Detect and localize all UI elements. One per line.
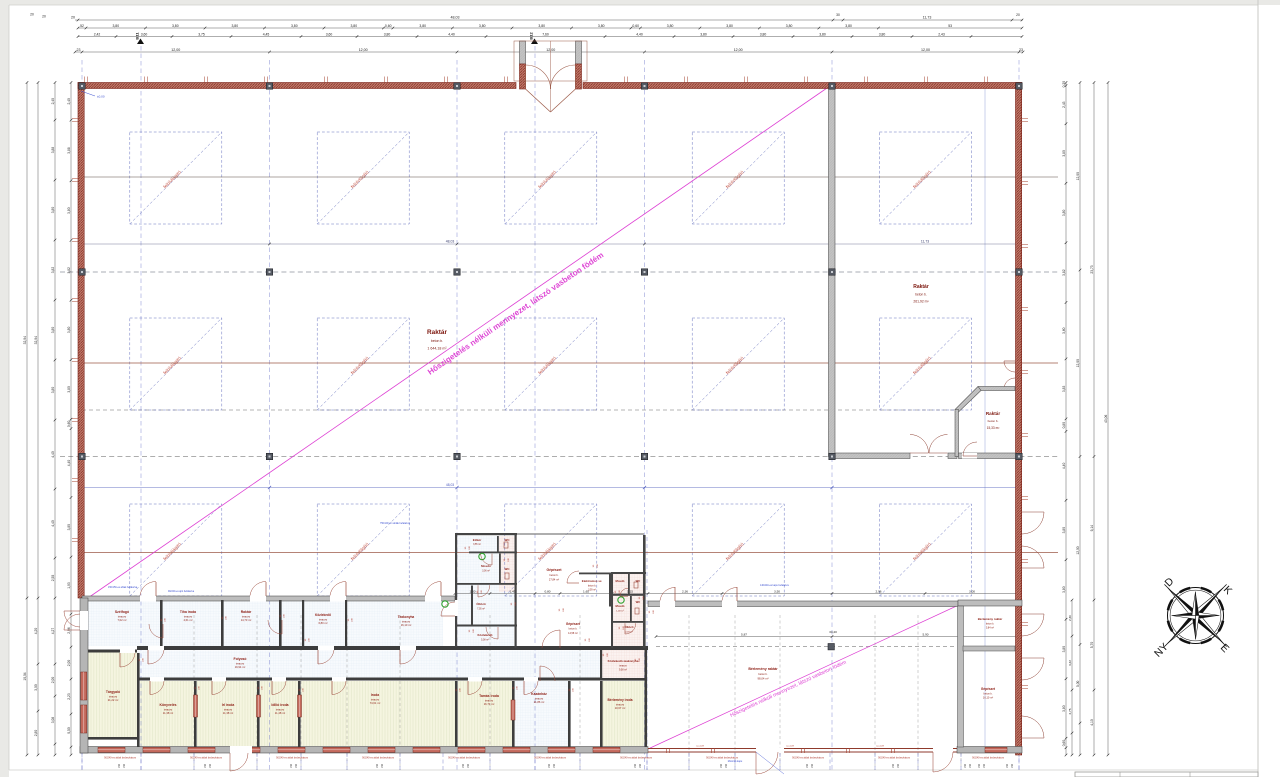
svg-text:terazzo: terazzo	[118, 615, 127, 618]
svg-text:terazzo: terazzo	[535, 697, 544, 700]
svg-text:150: 150	[1011, 763, 1014, 768]
svg-text:3,80: 3,80	[845, 24, 852, 28]
svg-text:WC: WC	[505, 538, 511, 542]
svg-text:43,06: 43,06	[1104, 415, 1108, 423]
svg-text:150: 150	[725, 763, 728, 768]
svg-text:52: 52	[80, 24, 84, 28]
svg-text:90/240-es ablak bedeszkázva: 90/240-es ablak bedeszkázva	[972, 757, 1004, 760]
svg-text:34,40: 34,40	[829, 630, 837, 634]
svg-text:Öltöző: Öltöző	[625, 625, 634, 629]
svg-text:Bérlemény raktár: Bérlemény raktár	[748, 667, 778, 671]
svg-text:3,80: 3,80	[172, 24, 179, 28]
svg-text:3,06 m²: 3,06 m²	[482, 570, 490, 573]
svg-text:Tárgyaló: Tárgyaló	[106, 690, 120, 694]
svg-text:Mosdó: Mosdó	[615, 579, 624, 583]
svg-text:3,80: 3,80	[726, 24, 733, 28]
svg-text:3,82: 3,82	[1062, 269, 1066, 276]
svg-text:Tamás iroda: Tamás iroda	[479, 694, 499, 698]
svg-text:4,40: 4,40	[51, 451, 55, 458]
svg-text:11,73: 11,73	[923, 16, 932, 20]
svg-text:3,08: 3,08	[51, 717, 55, 724]
svg-text:150: 150	[553, 763, 556, 768]
svg-text:90/240-es ablak bedeszkázva: 90/240-es ablak bedeszkázva	[104, 757, 136, 760]
svg-text:150: 150	[376, 763, 379, 768]
svg-text:150: 150	[204, 763, 207, 768]
svg-text:Mosdó: Mosdó	[615, 604, 624, 608]
svg-text:140/240-es kapu befalazva: 140/240-es kapu befalazva	[760, 584, 789, 587]
svg-text:2,40: 2,40	[51, 98, 55, 105]
svg-text:2,43: 2,43	[1062, 101, 1066, 108]
svg-text:150: 150	[720, 763, 723, 768]
svg-text:Kazánház: Kazánház	[531, 692, 547, 696]
svg-text:3,88: 3,88	[51, 147, 55, 154]
svg-text:150: 150	[892, 763, 895, 768]
svg-text:9,14: 9,14	[1090, 525, 1094, 532]
svg-text:150: 150	[381, 763, 384, 768]
svg-text:11,48 m²: 11,48 m²	[275, 711, 286, 715]
svg-text:3,80: 3,80	[1062, 646, 1066, 653]
svg-text:15,33 m²: 15,33 m²	[987, 426, 1000, 430]
svg-text:Előtér: Előtér	[473, 538, 482, 542]
svg-text:150: 150	[969, 763, 972, 768]
svg-text:3,80: 3,80	[112, 24, 119, 28]
svg-text:2,75: 2,75	[1068, 708, 1072, 714]
svg-text:90/240-es ajtó befalazva: 90/240-es ajtó befalazva	[168, 590, 195, 593]
svg-text:Közlekedő: Közlekedő	[315, 613, 331, 617]
svg-text:2,55: 2,55	[51, 575, 55, 582]
svg-text:2,00: 2,00	[67, 660, 71, 667]
svg-text:3,80: 3,80	[819, 32, 826, 36]
svg-text:11,73: 11,73	[921, 240, 929, 244]
svg-text:2,42: 2,42	[94, 32, 101, 36]
svg-text:3,80: 3,80	[700, 32, 707, 36]
svg-text:terazzo: terazzo	[319, 618, 328, 621]
svg-text:5,08 m²: 5,08 m²	[481, 639, 489, 642]
svg-text:4,40: 4,40	[636, 32, 643, 36]
svg-text:12,00: 12,00	[1076, 172, 1080, 180]
svg-text:150: 150	[462, 763, 465, 768]
svg-text:terazzo: terazzo	[164, 708, 173, 711]
svg-text:23: 23	[1019, 48, 1023, 52]
svg-text:14,73 m²: 14,73 m²	[241, 618, 252, 622]
svg-text:53: 53	[948, 24, 952, 28]
svg-text:sz=1,09: sz=1,09	[876, 746, 885, 748]
svg-text:3,80: 3,80	[538, 24, 545, 28]
svg-text:3,80: 3,80	[760, 32, 767, 36]
svg-text:48,03: 48,03	[446, 483, 454, 487]
svg-text:3,60: 3,60	[326, 32, 333, 36]
svg-text:3,80: 3,80	[350, 24, 357, 28]
svg-text:150: 150	[983, 763, 986, 768]
svg-text:2,48 m²: 2,48 m²	[625, 631, 633, 634]
svg-text:3,80: 3,80	[1062, 705, 1066, 712]
svg-text:5,84 m²: 5,84 m²	[986, 627, 994, 630]
svg-text:12,00: 12,00	[546, 48, 555, 52]
svg-text:sz=1,09: sz=1,09	[696, 746, 705, 748]
svg-text:27,84 m²: 27,84 m²	[549, 578, 559, 582]
svg-text:3,80: 3,80	[1062, 150, 1066, 157]
svg-text:150: 150	[548, 763, 551, 768]
svg-text:3,80: 3,80	[598, 24, 605, 28]
svg-text:B11: B11	[135, 32, 140, 40]
svg-text:Folyosó: Folyosó	[234, 657, 247, 661]
svg-text:3,80: 3,80	[231, 24, 238, 28]
svg-text:1,15: 1,15	[627, 589, 633, 593]
svg-text:9,08 m²: 9,08 m²	[619, 669, 627, 672]
svg-text:3,80: 3,80	[291, 24, 298, 28]
svg-text:4,45: 4,45	[263, 32, 270, 36]
svg-text:48,03: 48,03	[446, 240, 455, 244]
svg-text:beton b.: beton b.	[983, 693, 992, 696]
svg-text:32,94: 32,94	[34, 336, 38, 344]
svg-text:23,73: 23,73	[1090, 265, 1094, 273]
svg-text:Bérlemény iroda: Bérlemény iroda	[608, 698, 633, 702]
svg-text:3,80: 3,80	[67, 386, 71, 393]
svg-text:Motoros kapu: Motoros kapu	[728, 760, 743, 763]
svg-text:0,50: 0,50	[67, 727, 71, 734]
svg-text:Iroda: Iroda	[371, 693, 379, 697]
svg-text:Raktár: Raktár	[241, 610, 252, 614]
svg-text:150: 150	[209, 763, 212, 768]
svg-text:beton b.: beton b.	[988, 419, 999, 423]
svg-text:150: 150	[634, 763, 637, 768]
svg-text:7,02 m²: 7,02 m²	[117, 618, 126, 622]
svg-text:90/240-es ablak bedeszkázva: 90/240-es ablak bedeszkázva	[792, 757, 824, 760]
svg-text:3,80: 3,80	[1062, 527, 1066, 534]
svg-text:5,87: 5,87	[741, 632, 747, 636]
svg-text:3,88: 3,88	[67, 147, 71, 154]
svg-text:90/240-es ablak bedeszkázva: 90/240-es ablak bedeszkázva	[362, 757, 394, 760]
svg-text:4,20: 4,20	[34, 628, 38, 635]
svg-text:11,38 m²: 11,38 m²	[223, 711, 234, 715]
svg-text:Elektromos sz.: Elektromos sz.	[582, 579, 603, 583]
svg-text:3,60: 3,60	[1062, 327, 1066, 334]
svg-text:±0,00: ±0,00	[97, 95, 105, 99]
svg-text:23: 23	[77, 48, 81, 52]
svg-text:Gépészet: Gépészet	[981, 687, 996, 691]
svg-text:Idllió iroda: Idllió iroda	[271, 703, 288, 707]
svg-text:terazzo: terazzo	[184, 615, 193, 618]
svg-text:16,10 m²: 16,10 m²	[401, 623, 412, 627]
svg-text:2,30: 2,30	[1068, 615, 1072, 621]
svg-text:3,80: 3,80	[479, 24, 486, 28]
svg-text:Raktár: Raktár	[913, 284, 929, 290]
svg-text:3,80: 3,80	[1062, 210, 1066, 217]
svg-text:3,80: 3,80	[419, 24, 426, 28]
svg-text:150: 150	[467, 763, 470, 768]
svg-text:150: 150	[123, 763, 126, 768]
svg-text:Teakonyha: Teakonyha	[398, 615, 415, 619]
svg-text:7,05 m²: 7,05 m²	[477, 608, 485, 611]
svg-text:terazzo: terazzo	[236, 662, 245, 665]
svg-text:90/240-es ablak bedeszkázva: 90/240-es ablak bedeszkázva	[534, 757, 566, 760]
svg-text:Raktár: Raktár	[427, 329, 447, 336]
svg-text:WC: WC	[505, 567, 511, 571]
svg-text:terazzo: terazzo	[242, 615, 251, 618]
svg-text:beton b.: beton b.	[549, 574, 558, 577]
svg-text:5,90: 5,90	[922, 632, 928, 636]
svg-text:0,60: 0,60	[632, 24, 639, 28]
svg-text:3,80: 3,80	[51, 387, 55, 394]
svg-text:3,80: 3,80	[67, 207, 71, 214]
svg-text:2,80: 2,80	[34, 730, 38, 737]
svg-text:12,00: 12,00	[921, 48, 930, 52]
svg-text:Gépészet: Gépészet	[546, 568, 562, 572]
svg-text:Könyvelés: Könyvelés	[160, 703, 177, 707]
svg-text:2,00: 2,00	[51, 677, 55, 684]
svg-text:150: 150	[811, 763, 814, 768]
svg-text:90/240-es ablak bedeszkázva: 90/240-es ablak bedeszkázva	[190, 757, 222, 760]
svg-text:3,80: 3,80	[879, 32, 886, 36]
svg-text:7,60: 7,60	[542, 32, 549, 36]
svg-text:1 644,18 m²: 1 644,18 m²	[427, 347, 447, 351]
svg-text:10,04: 10,04	[23, 672, 27, 680]
svg-text:4,40: 4,40	[67, 460, 71, 467]
svg-text:0,60: 0,60	[1062, 740, 1066, 747]
svg-text:261,92 m²: 261,92 m²	[913, 300, 929, 304]
svg-text:Mosdó: Mosdó	[481, 564, 491, 568]
svg-text:Közlekedő-teakonyha: Közlekedő-teakonyha	[608, 659, 639, 663]
svg-text:terazzo: terazzo	[619, 665, 627, 668]
svg-text:Közlekedő: Közlekedő	[477, 633, 492, 637]
svg-text:6,80 m²: 6,80 m²	[318, 621, 327, 625]
svg-text:4,10: 4,10	[1090, 719, 1094, 726]
svg-text:48,03: 48,03	[451, 16, 460, 20]
svg-text:4,27: 4,27	[51, 628, 55, 635]
svg-text:30: 30	[836, 13, 840, 17]
svg-text:sz=1,09: sz=1,09	[786, 746, 795, 748]
svg-text:B12: B12	[529, 32, 534, 40]
svg-text:150: 150	[639, 763, 642, 768]
svg-text:150: 150	[964, 763, 967, 768]
svg-text:150/150-es ablak befalazva: 150/150-es ablak befalazva	[108, 586, 138, 589]
svg-text:150: 150	[806, 763, 809, 768]
svg-text:5,70: 5,70	[1090, 642, 1094, 649]
svg-text:3,50: 3,50	[774, 589, 780, 593]
svg-text:3,80: 3,80	[786, 24, 793, 28]
svg-text:0,20: 0,20	[1062, 81, 1066, 88]
svg-text:0,80: 0,80	[1062, 422, 1066, 429]
svg-text:750/100 cm ablak befalazva: 750/100 cm ablak befalazva	[380, 522, 410, 525]
svg-text:2,96: 2,96	[875, 589, 881, 593]
svg-text:150: 150	[978, 763, 981, 768]
svg-text:3,42: 3,42	[1068, 660, 1072, 666]
svg-text:16,10 m²: 16,10 m²	[983, 696, 993, 700]
svg-text:90/240-es ablak bedeszkázva: 90/240-es ablak bedeszkázva	[620, 757, 652, 760]
svg-text:20: 20	[42, 15, 46, 19]
svg-text:0,60: 0,60	[385, 24, 392, 28]
svg-text:terazzo: terazzo	[224, 708, 233, 711]
svg-text:19,94 m²: 19,94 m²	[235, 665, 246, 669]
svg-text:20: 20	[1016, 13, 1020, 17]
svg-text:3,55 m²: 3,55 m²	[473, 543, 481, 546]
svg-text:20: 20	[71, 16, 75, 20]
svg-text:12,00: 12,00	[359, 48, 368, 52]
svg-text:11,38 m²: 11,38 m²	[163, 711, 174, 715]
svg-text:2,23: 2,23	[67, 693, 71, 700]
svg-text:150: 150	[1006, 763, 1009, 768]
svg-text:terazzo: terazzo	[276, 708, 285, 711]
svg-text:150: 150	[897, 763, 900, 768]
svg-text:4,40: 4,40	[448, 32, 455, 36]
svg-text:Szélfogó: Szélfogó	[115, 610, 129, 614]
svg-text:3,80: 3,80	[67, 327, 71, 334]
svg-text:2,06: 2,06	[67, 627, 71, 634]
svg-text:98,04 m²: 98,04 m²	[757, 677, 768, 681]
svg-text:90/240-es ablak bedeszkázva: 90/240-es ablak bedeszkázva	[878, 757, 910, 760]
svg-text:3,00: 3,00	[34, 684, 38, 691]
svg-text:4,61 m²: 4,61 m²	[183, 618, 192, 622]
svg-text:Öltöző: Öltöző	[476, 601, 485, 606]
svg-text:WC: WC	[636, 600, 641, 604]
svg-text:3,80: 3,80	[51, 207, 55, 214]
svg-text:beton b.: beton b.	[915, 293, 927, 297]
svg-text:Gépészet: Gépészet	[566, 622, 581, 626]
svg-text:3,80: 3,80	[51, 327, 55, 334]
svg-text:Tiha iroda: Tiha iroda	[180, 610, 196, 614]
svg-text:0,80: 0,80	[544, 589, 550, 593]
svg-text:beton b.: beton b.	[986, 622, 995, 625]
svg-text:beton b.: beton b.	[588, 585, 597, 588]
svg-text:150: 150	[118, 763, 121, 768]
svg-text:14,58 m²: 14,58 m²	[568, 632, 578, 635]
svg-text:3,82: 3,82	[51, 267, 55, 274]
svg-text:32,94: 32,94	[23, 336, 27, 344]
svg-text:12,00: 12,00	[1076, 546, 1080, 554]
svg-text:terazzo: terazzo	[371, 698, 380, 701]
svg-text:4,40: 4,40	[51, 520, 55, 527]
svg-text:150: 150	[295, 763, 298, 768]
svg-text:5,00: 5,00	[1076, 680, 1080, 687]
svg-text:Raktár: Raktár	[986, 411, 1001, 416]
svg-text:3,80: 3,80	[384, 32, 391, 36]
svg-text:2,43: 2,43	[938, 32, 945, 36]
svg-text:WC: WC	[636, 579, 641, 583]
svg-text:Irl iroda: Irl iroda	[222, 703, 235, 707]
svg-text:90/240-es ablak bedeszkázva: 90/240-es ablak bedeszkázva	[448, 757, 480, 760]
svg-text:16,71 m²: 16,71 m²	[484, 702, 495, 706]
svg-text:3,75: 3,75	[198, 32, 205, 36]
svg-text:1,93: 1,93	[67, 582, 71, 589]
svg-text:Bérlemény raktár: Bérlemény raktár	[978, 617, 1003, 621]
svg-text:3,00: 3,00	[969, 589, 975, 593]
svg-text:3,80: 3,80	[1062, 586, 1066, 593]
svg-text:3,60: 3,60	[141, 32, 148, 36]
svg-text:10,67 m²: 10,67 m²	[615, 706, 626, 710]
svg-text:21,86 m²: 21,86 m²	[534, 700, 545, 704]
svg-text:3,80: 3,80	[67, 524, 71, 531]
svg-text:1,48 m²: 1,48 m²	[616, 610, 624, 613]
svg-text:12,00: 12,00	[734, 48, 743, 52]
svg-text:4,40: 4,40	[1062, 463, 1066, 470]
svg-text:150: 150	[290, 763, 293, 768]
svg-text:3,59 m²: 3,59 m²	[588, 589, 596, 592]
svg-text:3,83: 3,83	[1062, 386, 1066, 393]
svg-text:terazzo: terazzo	[109, 695, 118, 698]
svg-text:beton b.: beton b.	[758, 672, 768, 676]
svg-text:terazzo: terazzo	[485, 699, 494, 702]
svg-text:12,00: 12,00	[171, 48, 180, 52]
svg-text:0,60: 0,60	[67, 421, 71, 428]
svg-text:terazzo: terazzo	[402, 620, 411, 623]
svg-text:beton b.: beton b.	[569, 628, 578, 631]
svg-text:12,00: 12,00	[1076, 359, 1080, 367]
svg-text:beton b.: beton b.	[431, 339, 443, 343]
svg-text:3,82: 3,82	[67, 267, 71, 274]
svg-text:2,40: 2,40	[67, 98, 71, 105]
svg-text:74,61 m²: 74,61 m²	[370, 701, 381, 705]
svg-text:2,36: 2,36	[682, 589, 688, 593]
svg-text:3,80: 3,80	[667, 24, 674, 28]
svg-text:20: 20	[30, 13, 34, 17]
svg-text:terazzo: terazzo	[616, 703, 625, 706]
svg-text:21,22 m²: 21,22 m²	[108, 698, 119, 702]
svg-text:90/240-es ablak bedeszkázva: 90/240-es ablak bedeszkázva	[276, 757, 308, 760]
